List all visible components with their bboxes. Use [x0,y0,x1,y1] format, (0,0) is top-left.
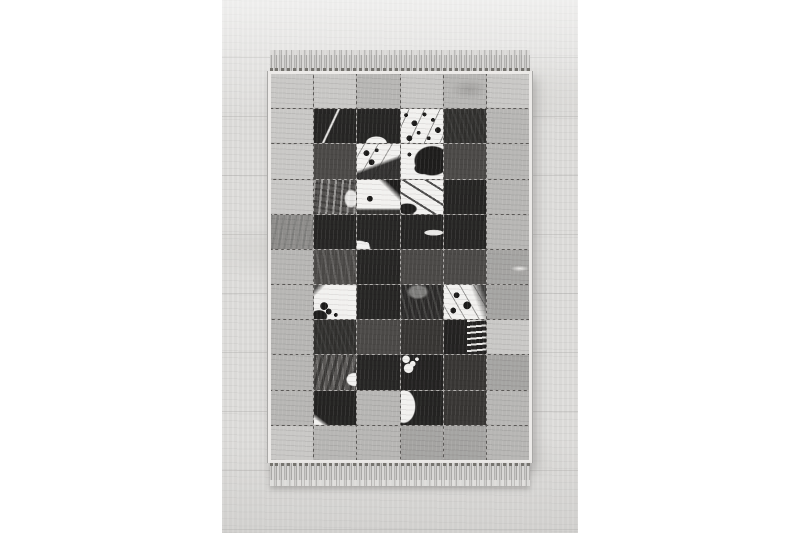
rug-cell [357,74,399,108]
rug-cell [444,320,486,354]
rug-cell [487,144,529,178]
rug-cell [314,250,356,284]
rug-cell [444,391,486,425]
rug-cell [444,74,486,108]
rug-cell [271,180,313,214]
rug-cell [271,320,313,354]
product-photo [0,0,800,533]
rug-cell [314,215,356,249]
rug-cell [357,355,399,389]
rug-cell [357,180,399,214]
rug-cell [271,250,313,284]
rug-cell [444,250,486,284]
rug-cell [314,74,356,108]
rug-cell [357,109,399,143]
rug-cell [271,426,313,460]
rug-cell [401,320,443,354]
rug-cell [314,180,356,214]
rug-cell [271,74,313,108]
rug-cell [357,320,399,354]
rug-cell [357,215,399,249]
rug-cell [271,144,313,178]
rug-cell [487,215,529,249]
rug-cell [314,355,356,389]
rug-cell [271,391,313,425]
rug-cell [357,250,399,284]
rug-cell [357,144,399,178]
rug-cell [357,285,399,319]
rug-cell [487,180,529,214]
rug-cell [271,109,313,143]
rug-cell [444,109,486,143]
rug-cell [401,355,443,389]
rug-cell [487,426,529,460]
rug-cell [314,320,356,354]
rug-cell [487,74,529,108]
rug-cell [444,285,486,319]
rug-cell [401,250,443,284]
rug-cell [314,109,356,143]
rug-cell [271,285,313,319]
rug-cell [401,109,443,143]
rug-cell [444,180,486,214]
rug-fringe-bottom [270,463,530,486]
rug-cell [314,285,356,319]
rug-cell [314,144,356,178]
rug-cell [401,285,443,319]
rug-cell [487,109,529,143]
rug-cell [271,215,313,249]
rug-body [268,71,532,463]
patchwork-rug [268,50,532,486]
rug-cell [271,355,313,389]
rug-cell [444,426,486,460]
rug-cell [444,355,486,389]
rug-cell [487,250,529,284]
rug-cell [401,391,443,425]
rug-cell [401,74,443,108]
rug-cell [357,391,399,425]
rug-cell [314,391,356,425]
rug-grid [271,74,529,460]
rug-cell [444,215,486,249]
rug-cell [487,355,529,389]
rug-cell [487,391,529,425]
rug-cell [401,180,443,214]
rug-cell [487,320,529,354]
rug-cell [401,215,443,249]
rug-cell [357,426,399,460]
rug-cell [401,144,443,178]
rug-fringe-top [270,50,530,71]
rug-cell [444,144,486,178]
rug-cell [487,285,529,319]
rug-cell [314,426,356,460]
rug-cell [401,426,443,460]
